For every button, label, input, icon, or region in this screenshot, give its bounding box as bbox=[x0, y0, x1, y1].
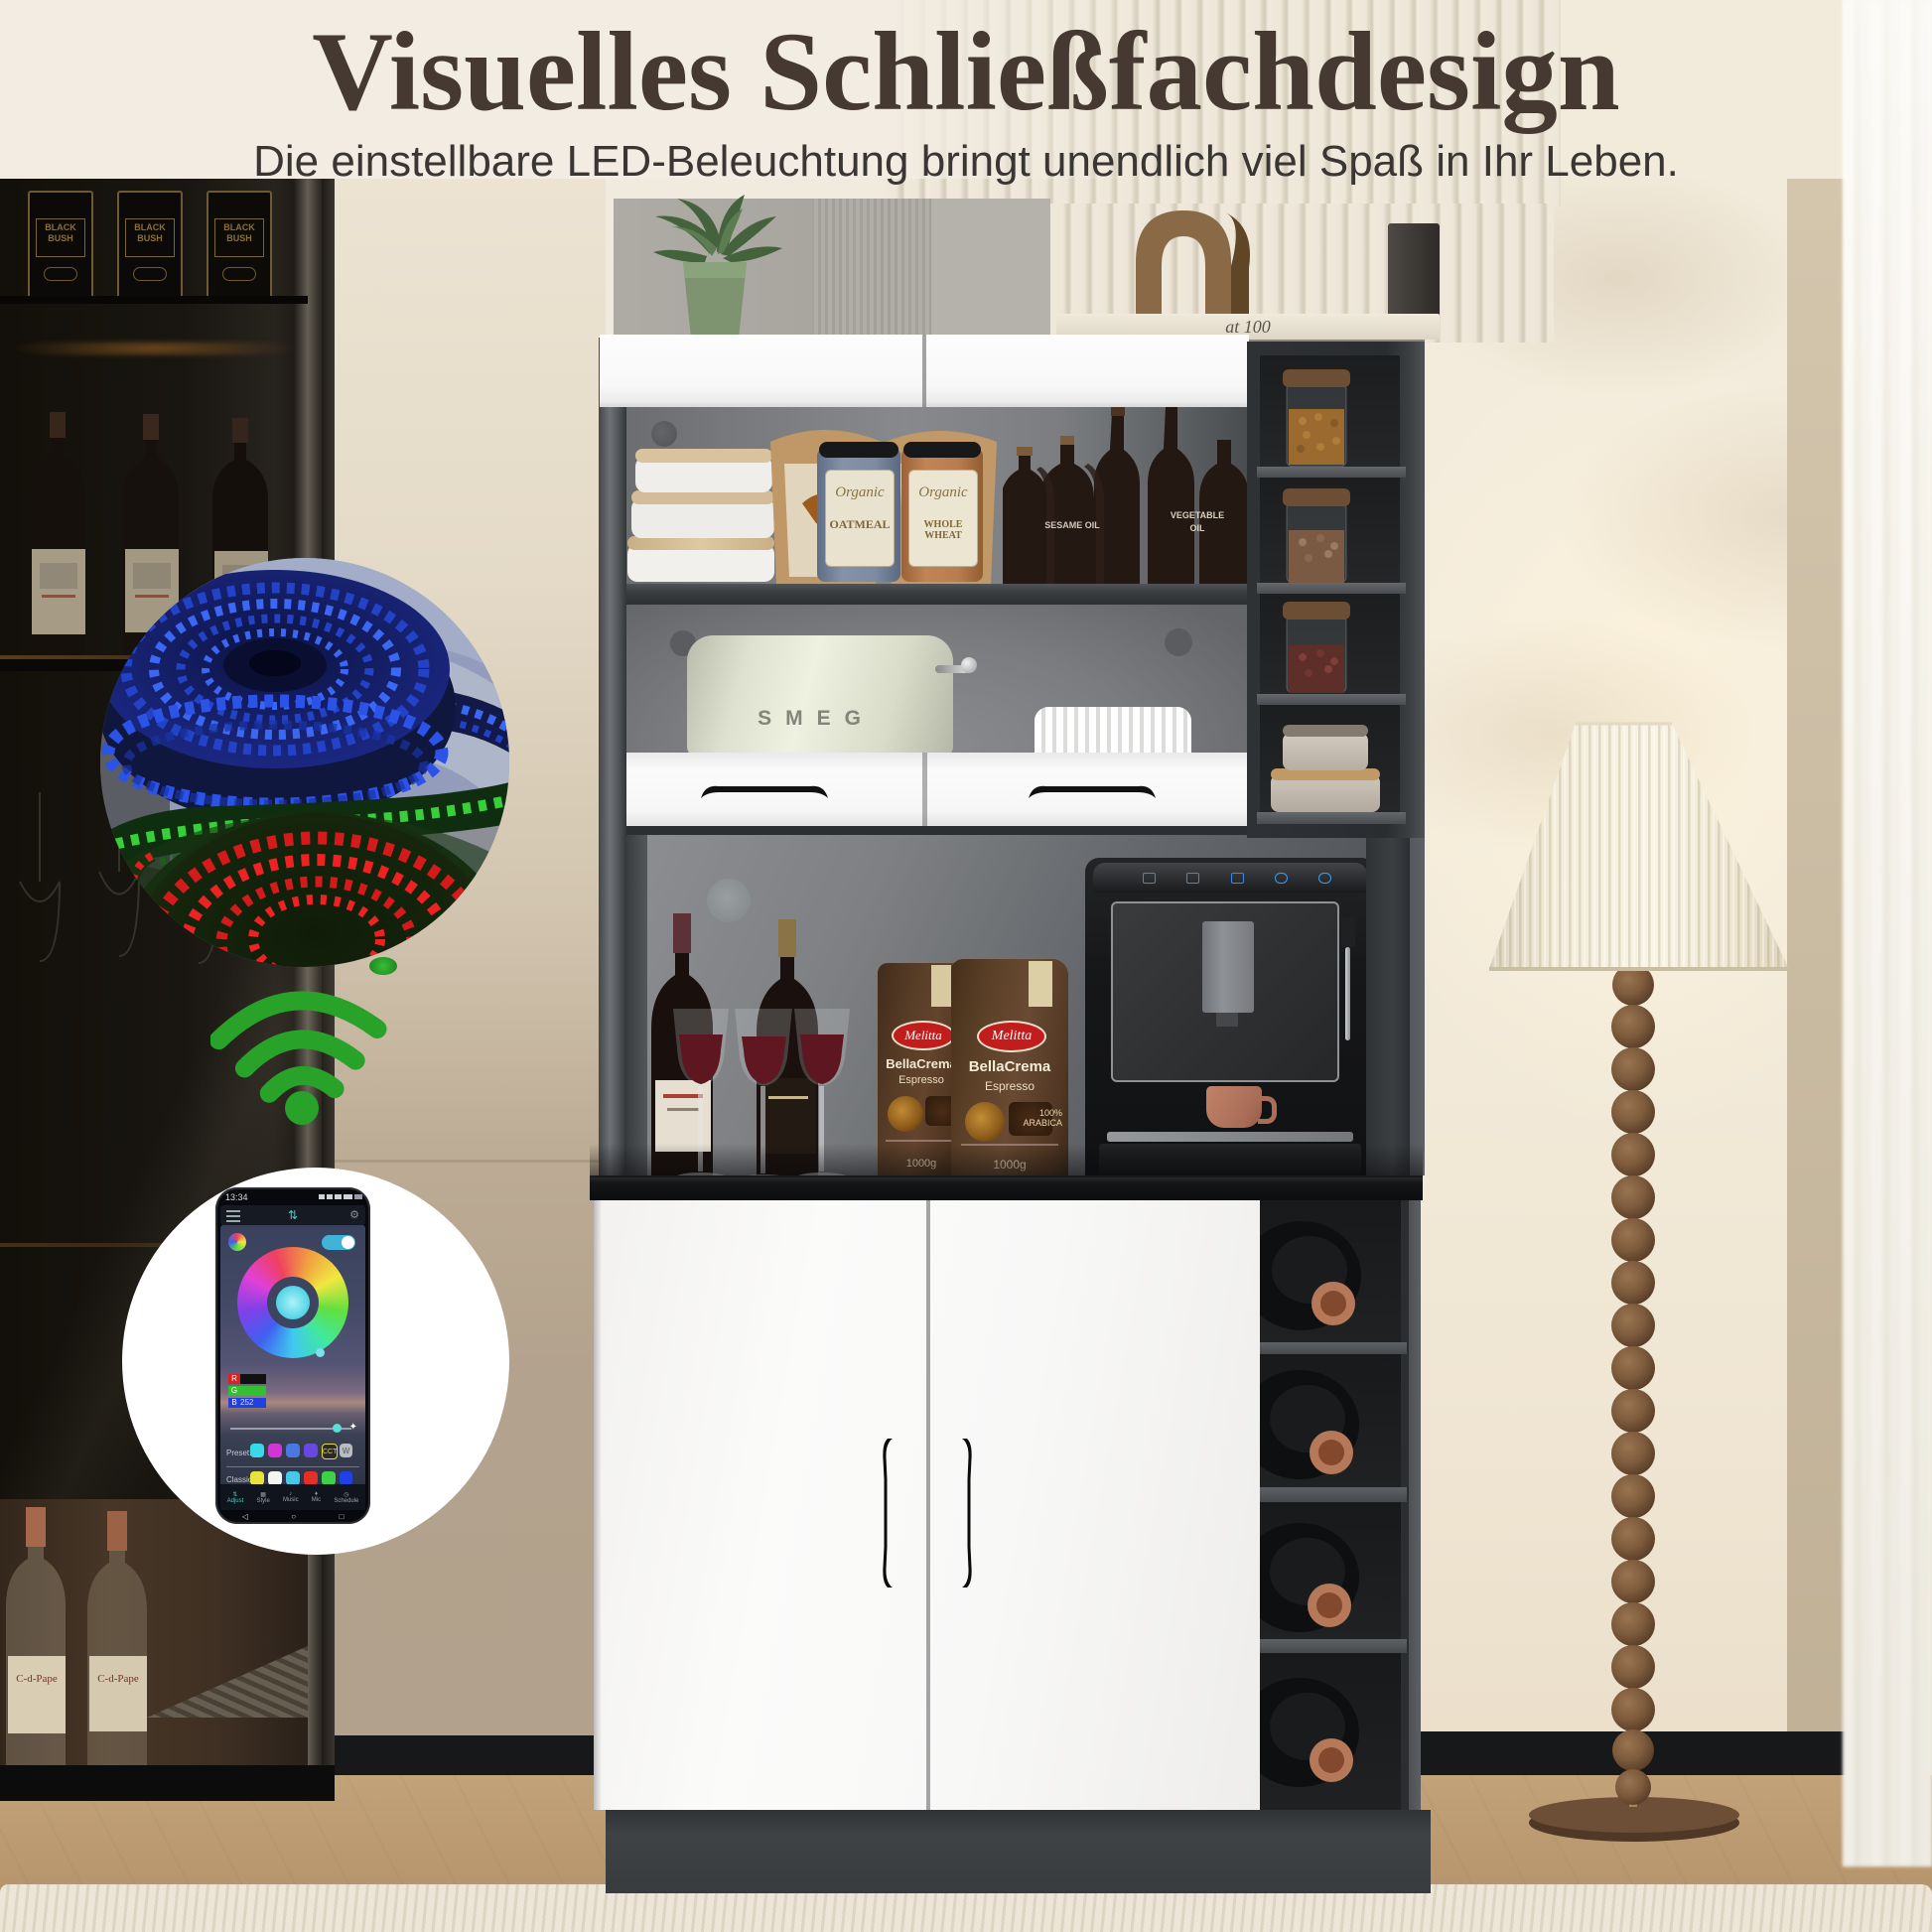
svg-text:SESAME OIL: SESAME OIL bbox=[1044, 520, 1100, 530]
svg-text:C-d-Pape: C-d-Pape bbox=[16, 1673, 58, 1685]
svg-text:VEGETABLE: VEGETABLE bbox=[1171, 510, 1224, 520]
svg-text:OIL: OIL bbox=[1190, 523, 1206, 533]
svg-text:C-d-Pape: C-d-Pape bbox=[97, 1673, 139, 1685]
